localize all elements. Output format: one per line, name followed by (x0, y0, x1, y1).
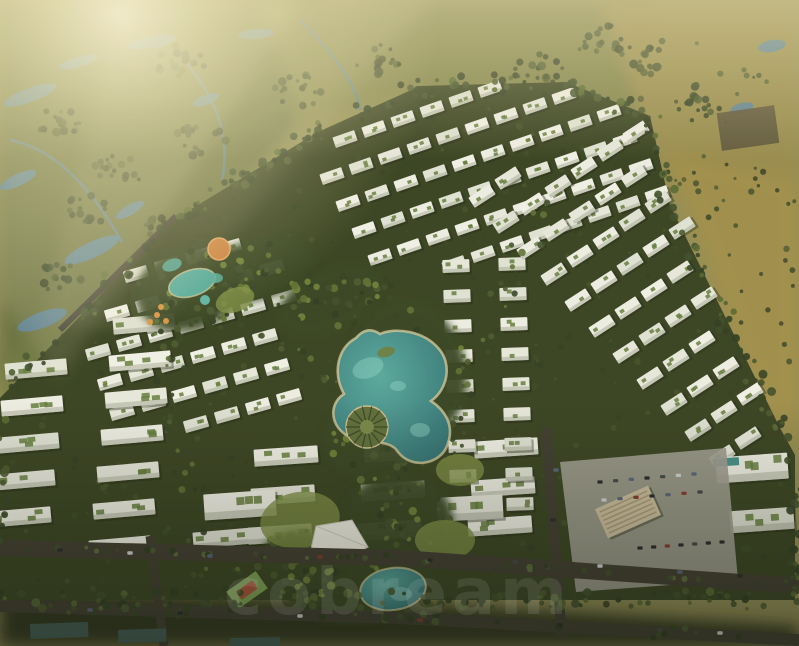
aerial-masterplan-svg: cobream (0, 0, 799, 646)
watermark-text: cobream (224, 556, 572, 630)
aerial-community-render: cobream (0, 0, 799, 646)
lighting-overlay (0, 0, 799, 646)
vignette (0, 0, 799, 646)
